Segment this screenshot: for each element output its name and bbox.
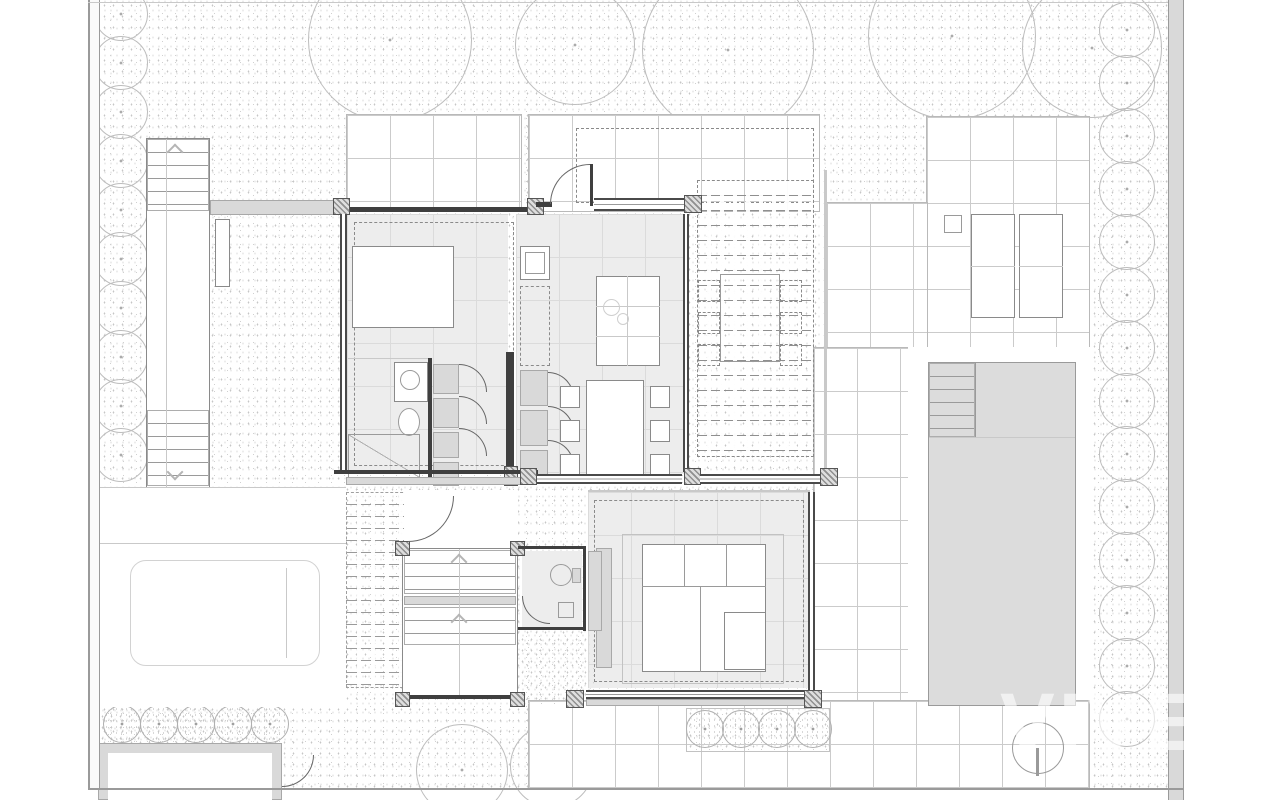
hedge-shrub <box>214 705 252 743</box>
hedge-shrub <box>177 705 215 743</box>
walkway-planter <box>215 219 230 287</box>
patio-northwest <box>346 114 522 212</box>
hedge-shrub <box>103 705 141 743</box>
tree-east <box>1099 108 1155 164</box>
bedroom-south-sill <box>346 477 528 485</box>
tree-west <box>94 36 148 90</box>
kitchen-tall-unit <box>520 370 548 406</box>
tree-east <box>1099 161 1155 217</box>
storage-room-floor <box>108 753 272 800</box>
front-door-leaf <box>590 164 593 206</box>
stair-landing <box>404 596 516 605</box>
dining-chair <box>560 386 580 408</box>
structural-column <box>684 468 701 485</box>
garden-walkway <box>210 200 344 215</box>
cooktop-burner <box>617 313 629 325</box>
pool-steps <box>929 363 975 437</box>
closet-wall <box>428 358 432 480</box>
structural-column <box>566 690 584 708</box>
kitchen-south-window <box>536 474 682 484</box>
lounger-fold-line <box>1019 266 1063 267</box>
island-divider <box>596 336 660 337</box>
tree-west <box>94 232 148 286</box>
sofa-seat-line <box>684 544 685 586</box>
wc-cistern <box>572 568 581 583</box>
closet-unit <box>433 432 459 458</box>
closet-unit <box>433 364 459 394</box>
bed <box>352 246 454 328</box>
terrace-chair <box>698 344 720 366</box>
tree-east <box>1099 585 1155 641</box>
boundary-wall-west <box>88 0 100 790</box>
tree-east <box>1099 373 1155 429</box>
stair-south-wall <box>402 695 518 699</box>
terrace-east-edge <box>824 170 827 478</box>
tree-east <box>1099 55 1155 111</box>
terrace-chair <box>698 280 720 302</box>
boundary-line-south <box>88 788 1184 790</box>
tree-west <box>94 379 148 433</box>
terrace-chair <box>780 280 802 302</box>
tree-east <box>1099 532 1155 588</box>
car-outline <box>130 560 320 666</box>
bath-toilet <box>398 408 420 436</box>
bedroom-west-window <box>340 214 347 470</box>
tree-west <box>94 85 148 139</box>
terrace-south-window <box>700 474 820 484</box>
living-south-window <box>586 690 812 699</box>
car-detail-line <box>286 568 287 658</box>
wc-east-wall <box>583 549 586 631</box>
wc-south-wall <box>518 627 586 630</box>
pool-steps-edge <box>975 363 976 437</box>
planter-shrub <box>686 710 724 748</box>
structural-column <box>820 468 838 486</box>
tree-west <box>94 330 148 384</box>
terrace-table <box>720 274 780 362</box>
bath-sink <box>400 370 420 390</box>
structural-column <box>520 468 537 485</box>
kitchen-tall-unit <box>520 410 548 446</box>
hedge-shrub <box>140 705 178 743</box>
dining-chair <box>560 420 580 442</box>
driveway-edge <box>88 543 346 544</box>
terrace-chair <box>698 312 720 334</box>
planter-shrub <box>794 710 832 748</box>
wc-north-wall <box>518 546 586 549</box>
central-wall <box>506 352 514 484</box>
tree-east <box>1099 426 1155 482</box>
tree-east <box>1099 479 1155 535</box>
dining-chair <box>650 454 670 476</box>
structural-column <box>684 195 702 213</box>
driveway-edge <box>88 487 346 488</box>
kitchen-sink-basin <box>525 252 545 274</box>
bedroom-north-wall <box>334 207 536 212</box>
closet-unit <box>433 398 459 428</box>
hedge-shrub <box>251 705 289 743</box>
bedroom-south-wall <box>334 470 538 474</box>
dining-chair <box>650 420 670 442</box>
garden-stair-edge <box>166 139 167 487</box>
living-south-sill <box>586 699 812 706</box>
kitchen-east-window <box>683 214 689 472</box>
wc-sink <box>558 602 574 618</box>
living-east-window <box>808 492 815 690</box>
kitchen-north-window <box>594 198 686 211</box>
tree-east <box>1099 267 1155 323</box>
sofa-seat-line <box>642 586 766 587</box>
planter-shrub <box>722 710 760 748</box>
dining-table <box>586 380 644 482</box>
terrace-chair <box>780 312 802 334</box>
tree-east <box>1099 320 1155 376</box>
deck-side-table <box>944 215 962 233</box>
wc-side-cabinet <box>588 551 602 631</box>
tree-east <box>1099 2 1155 58</box>
dining-chair <box>560 454 580 476</box>
boundary-line-north <box>88 2 1168 3</box>
tree-west <box>94 428 148 482</box>
kitchen-counter-dashed <box>520 286 550 366</box>
dining-chair <box>650 386 670 408</box>
structural-column <box>395 692 410 707</box>
site-plan-canvas: VIVE <box>0 0 1280 800</box>
structural-column <box>510 692 525 707</box>
planter-shrub <box>758 710 796 748</box>
structural-column <box>804 690 822 708</box>
tree-west <box>94 183 148 237</box>
terrace-chair <box>780 344 802 366</box>
sofa-ottoman <box>724 612 766 670</box>
watermark: VIVE <box>1000 676 1203 770</box>
cooktop-burner <box>603 299 620 316</box>
tree-west <box>94 281 148 335</box>
bath-partition-line <box>348 358 430 359</box>
sofa-seat-line <box>726 544 727 586</box>
deck-louvers <box>346 492 408 688</box>
pool-shelf-line <box>929 437 1075 438</box>
structural-column <box>395 541 410 556</box>
lounger-fold-line <box>971 266 1015 267</box>
patio-east <box>826 202 928 348</box>
tree-east <box>1099 214 1155 270</box>
wc-toilet <box>550 564 572 586</box>
living-north-edge <box>588 490 810 492</box>
tree-west <box>94 134 148 188</box>
sofa-seat-line <box>700 586 701 672</box>
structural-column <box>333 198 350 215</box>
